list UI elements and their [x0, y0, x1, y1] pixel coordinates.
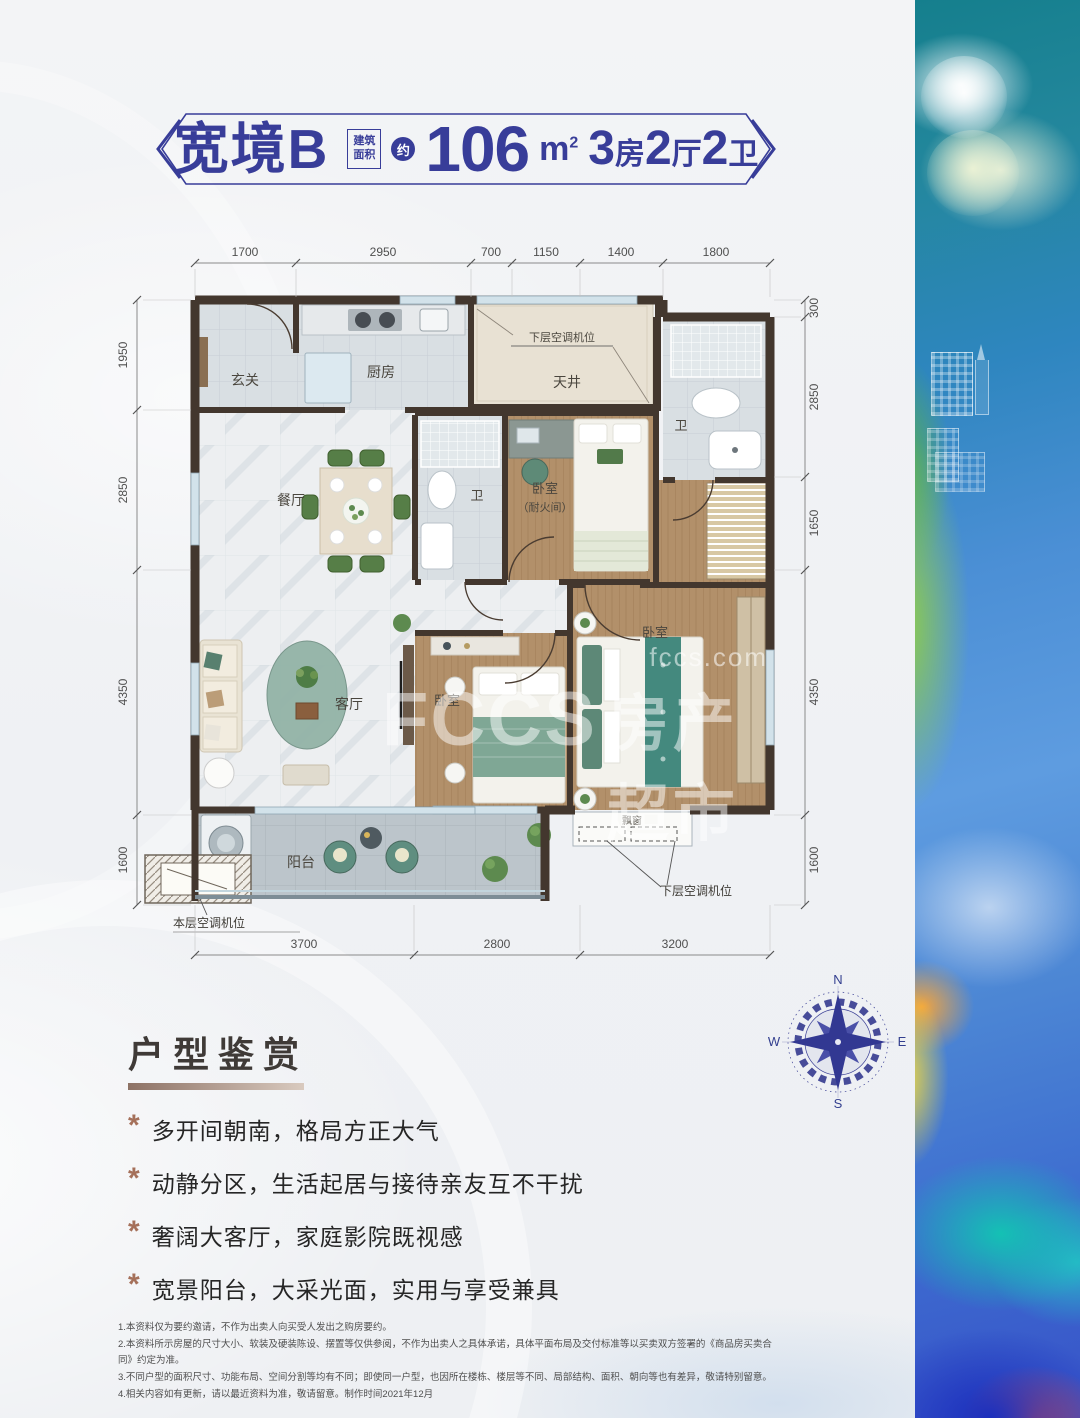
area-type-badge: 建筑 面积: [347, 129, 381, 169]
features-list: * 多开间朝南，格局方正大气 * 动静分区，生活起居与接待亲友互不干扰 * 奢阔…: [128, 1112, 584, 1305]
room-label-kitchen: 厨房: [367, 364, 395, 380]
room-label-bay-window: 飘窗: [622, 814, 642, 827]
disclaimer-line: 2.本资料所示房屋的尺寸大小、软装及硬装陈设、摆置等仅供参阅，不作为出卖人之具体…: [118, 1337, 783, 1370]
label-ac-bottom: 下层空调机位: [660, 883, 732, 898]
features-title: 户型鉴赏: [128, 1026, 584, 1078]
area-type-line2: 面积: [353, 149, 375, 163]
room-label-foyer: 玄关: [231, 372, 259, 388]
disclaimer-line: 1.本资料仅为要约邀请，不作为出卖人向买受人发出之购房要约。: [118, 1320, 783, 1337]
dim-top-5: 1800: [703, 245, 730, 259]
dim-top-4: 1400: [608, 245, 635, 259]
feature-text: 奢阔大客厅，家庭影院既视感: [152, 1218, 464, 1252]
room-label-balcony: 阳台: [287, 854, 315, 870]
room-label-bedroom-fire-sub: （耐火间）: [518, 501, 573, 514]
asterisk-icon: *: [128, 1165, 140, 1192]
feature-item: * 动静分区，生活起居与接待亲友互不干扰: [128, 1165, 584, 1199]
dim-left-3: 1600: [116, 846, 130, 873]
floorplan-poster: 宽境B 建筑 面积 约 106 m2 3 房 2 厅 2 卫: [0, 0, 1080, 1418]
asterisk-icon: *: [128, 1271, 140, 1298]
dim-top-2: 700: [481, 245, 501, 259]
dim-bottom-0: 3700: [291, 937, 318, 951]
features-underline: [128, 1083, 304, 1090]
dim-top-0: 1700: [232, 245, 259, 259]
spec-num: 3: [588, 125, 615, 173]
area-value: 106: [425, 117, 529, 181]
room-label-bedroom-fire: 卧室: [532, 481, 558, 496]
asterisk-icon: *: [128, 1218, 140, 1245]
compass-icon: N E S W: [768, 972, 908, 1112]
spec-unit: 厅: [672, 140, 702, 173]
dim-bottom-2: 3200: [662, 937, 689, 951]
features-section: 户型鉴赏 * 多开间朝南，格局方正大气 * 动静分区，生活起居与接待亲友互不干扰…: [128, 1026, 584, 1324]
floorplan-drawing: 玄关 厨房 天井 卫 卫 餐厅 客厅 卧室 （耐火间） 卧室 卧室 阳台 飘窗 …: [115, 225, 835, 985]
tower-icon: [975, 360, 989, 415]
approx-badge: 约: [391, 137, 415, 161]
spec-num: 2: [645, 125, 672, 173]
spec-unit: 房: [615, 140, 645, 173]
dim-right-4: 1600: [807, 846, 821, 873]
compass-w: W: [768, 1034, 781, 1049]
dim-right-3: 4350: [807, 678, 821, 705]
room-label-dining: 餐厅: [277, 492, 305, 508]
dim-left-1: 2850: [116, 476, 130, 503]
disclaimer-line: 3.不同户型的面积尺寸、功能布局、空间分割等均有不同；即使同一户型，也因所在楼栋…: [118, 1370, 783, 1387]
room-label-bedroom-mid: 卧室: [434, 693, 460, 708]
feature-item: * 奢阔大客厅，家庭影院既视感: [128, 1218, 584, 1252]
dim-right-2: 1650: [807, 509, 821, 536]
compass-n: N: [833, 972, 842, 987]
spec-unit: 卫: [728, 140, 758, 173]
feature-text: 动静分区，生活起居与接待亲友互不干扰: [152, 1165, 584, 1199]
dim-left-0: 1950: [116, 341, 130, 368]
watercolor-art-strip: [915, 0, 1080, 1418]
dim-right-1: 2850: [807, 383, 821, 410]
header-banner: 宽境B 建筑 面积 约 106 m2 3 房 2 厅 2 卫: [150, 106, 782, 192]
room-label-bath-top: 卫: [674, 418, 687, 433]
unit-m: m: [539, 130, 569, 168]
dim-right-0: 300: [807, 298, 821, 318]
room-label-living: 客厅: [335, 696, 363, 712]
compass-s: S: [834, 1096, 843, 1111]
building-icon: [935, 452, 985, 492]
room-label-bath-mid: 卫: [470, 488, 483, 503]
feature-text: 宽景阳台，大采光面，实用与享受兼具: [152, 1271, 560, 1305]
feature-item: * 宽景阳台，大采光面，实用与享受兼具: [128, 1271, 584, 1305]
plan-title: 宽境B: [174, 122, 330, 177]
tree-icon: [927, 130, 1019, 216]
room-label-bedroom-master: 卧室: [642, 625, 668, 640]
dim-bottom-1: 2800: [484, 937, 511, 951]
unit-sup: 2: [569, 134, 578, 151]
dim-top-3: 1150: [533, 245, 559, 259]
area-type-line1: 建筑: [353, 135, 375, 149]
dim-left-2: 4350: [116, 678, 130, 705]
label-ac-top: 下层空调机位: [529, 330, 595, 344]
feature-item: * 多开间朝南，格局方正大气: [128, 1112, 584, 1146]
compass-e: E: [898, 1034, 907, 1049]
tree-icon: [921, 56, 1007, 138]
building-icon: [931, 352, 973, 416]
disclaimer: 1.本资料仅为要约邀请，不作为出卖人向买受人发出之购房要约。 2.本资料所示房屋…: [118, 1320, 783, 1403]
room-spec: 3 房 2 厅 2 卫: [588, 125, 758, 173]
spec-num: 2: [702, 125, 729, 173]
disclaimer-line: 4.相关内容如有更新，请以最近资料为准，敬请留意。制作时间2021年12月: [118, 1387, 783, 1404]
room-label-lightwell: 天井: [553, 374, 581, 390]
asterisk-icon: *: [128, 1112, 140, 1139]
area-unit: m2: [539, 130, 578, 169]
dim-top-1: 2950: [370, 245, 397, 259]
label-ac-this-floor: 本层空调机位: [173, 915, 245, 930]
feature-text: 多开间朝南，格局方正大气: [152, 1112, 440, 1146]
